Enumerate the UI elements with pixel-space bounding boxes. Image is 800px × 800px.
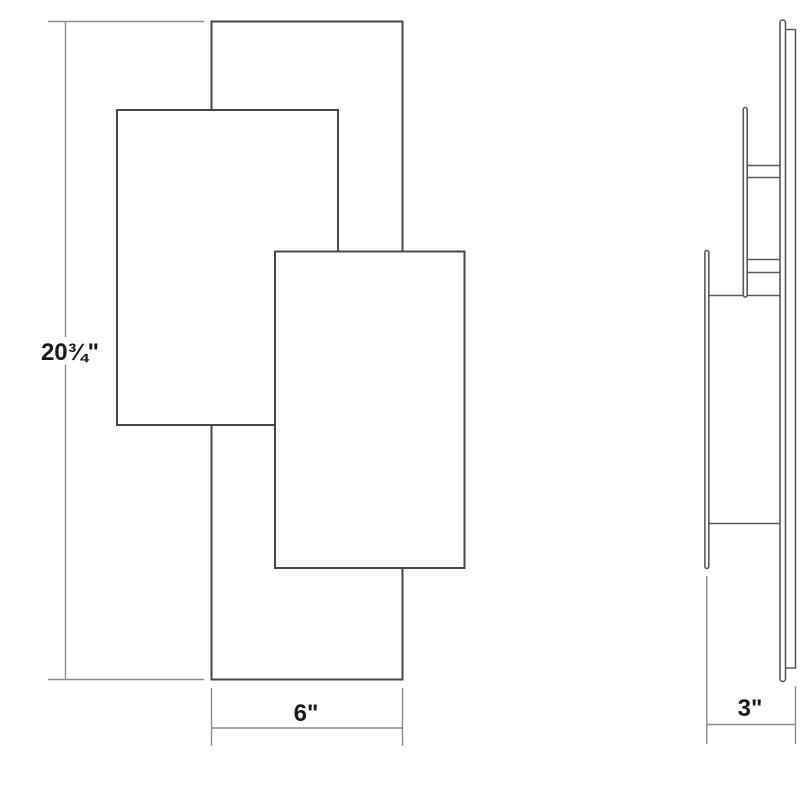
depth-dimension-label: 3" bbox=[738, 695, 763, 722]
height-dimension-label: 20¾" bbox=[41, 339, 99, 366]
front-view: 20¾" 6" bbox=[41, 22, 465, 747]
middle-plate-edge bbox=[743, 108, 747, 298]
back-plate-edge bbox=[780, 20, 786, 682]
drawing-canvas: 20¾" 6" bbox=[0, 0, 800, 800]
width-dimension-label: 6" bbox=[294, 700, 319, 727]
front-panel bbox=[275, 252, 465, 569]
sconce-dimension-drawing: 20¾" 6" bbox=[0, 0, 800, 800]
wall-return-bracket bbox=[786, 30, 796, 669]
front-plate-edge bbox=[705, 251, 709, 569]
side-view: 3" bbox=[705, 20, 796, 744]
